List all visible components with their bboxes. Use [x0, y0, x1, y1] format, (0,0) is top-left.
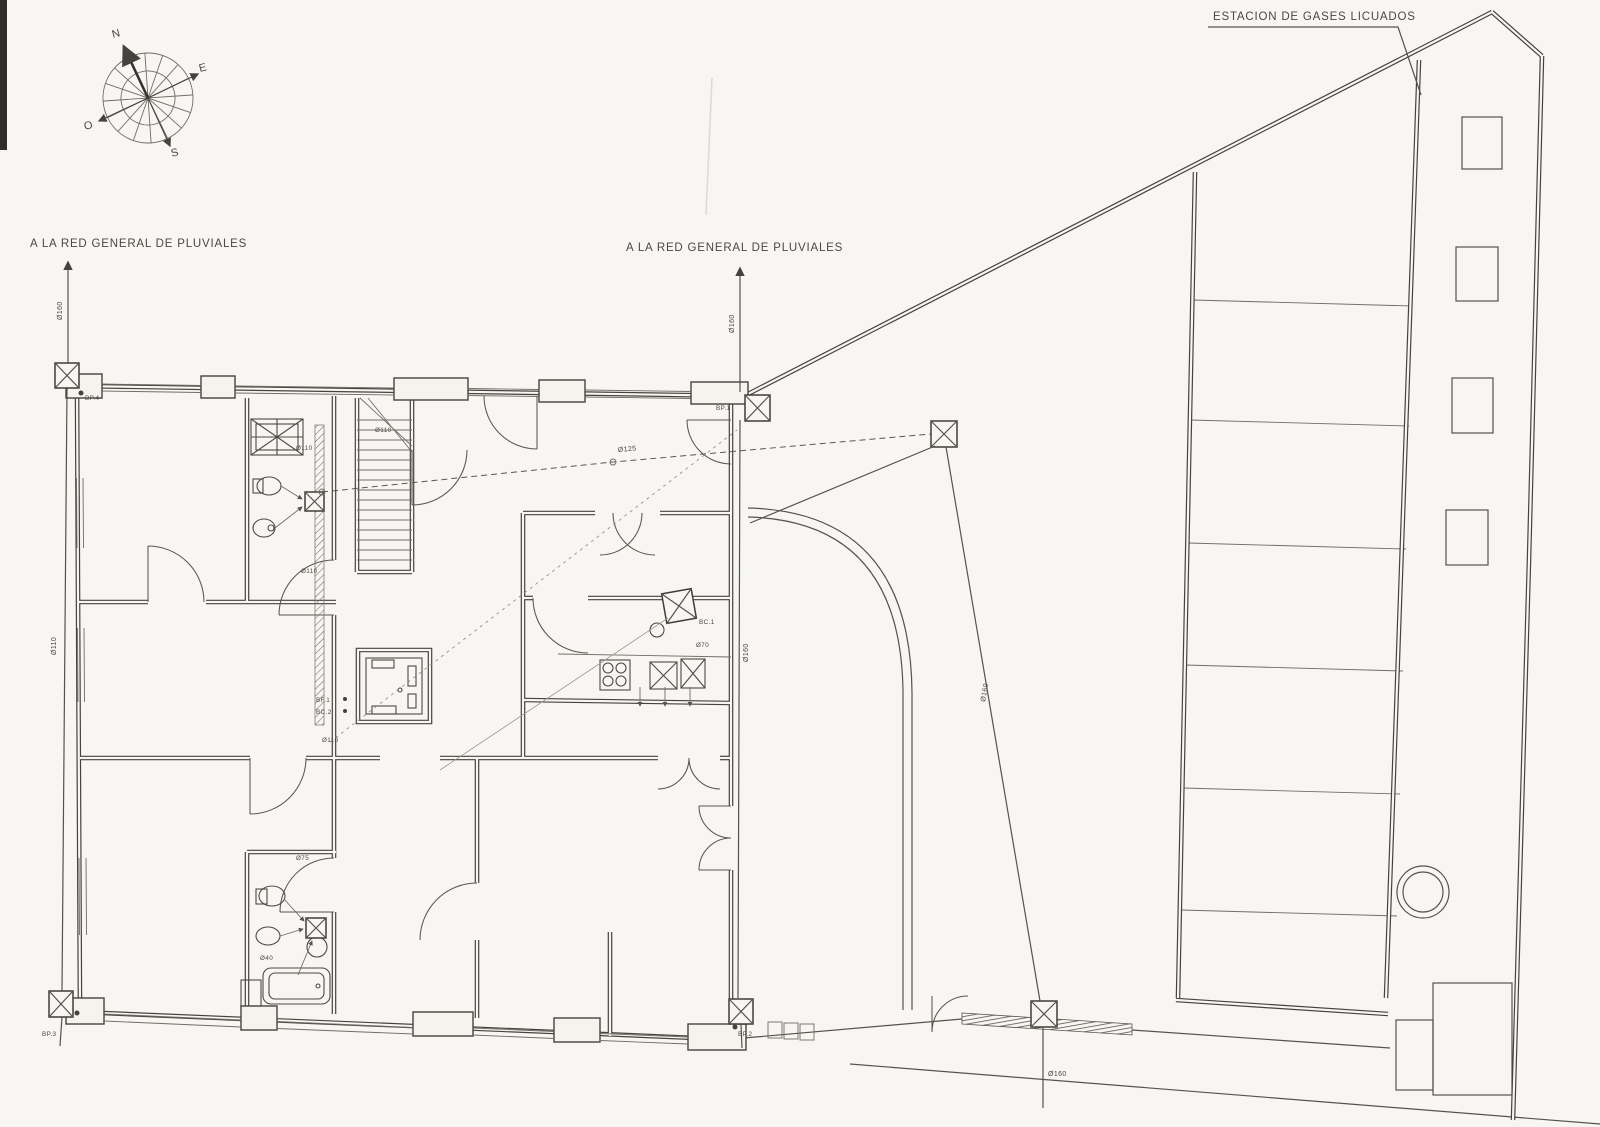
kitchen-manhole	[662, 589, 697, 624]
bath-upper-pipe-label: Ø110	[296, 445, 313, 452]
estacion-callout: ESTACION DE GASES LICUADOS	[1208, 11, 1421, 95]
compass-east-label: E	[198, 61, 209, 75]
pipe-label-left-160: Ø160	[57, 301, 64, 320]
pipe-channel-hatch	[315, 425, 324, 725]
scan-edge-artifact	[0, 0, 7, 150]
compass-rose: N E S O	[83, 27, 209, 160]
pipe-label-left-110: Ø110	[51, 637, 58, 655]
site-plan-drawing: N E S O	[0, 0, 1600, 1127]
estacion-label: ESTACION DE GASES LICUADOS	[1213, 11, 1416, 23]
pluviales-left-label: A LA RED GENERAL DE PLUVIALES	[30, 238, 247, 250]
compass-north-label: N	[111, 27, 122, 41]
bottom-right-structures	[1396, 983, 1512, 1095]
staircase: Ø110	[357, 398, 412, 560]
annotations: A LA RED GENERAL DE PLUVIALES A LA RED G…	[30, 11, 1421, 1078]
bathroom-upper: Ø110 Ø110	[251, 419, 324, 725]
kitchen-manhole-label: BC.1	[699, 619, 715, 626]
utility-bc-label: BC.2	[316, 709, 332, 716]
bath-lower-manhole	[306, 918, 326, 938]
bath-lower-pipe-label-75: Ø75	[296, 855, 309, 862]
bath-lower-pipe-label-40: Ø40	[260, 955, 273, 962]
paper-crease	[706, 78, 712, 215]
pipe-label-center-low: Ø160	[743, 643, 750, 662]
bathroom-lower: Ø75 Ø40	[241, 855, 330, 1006]
compass-west-label: O	[83, 119, 95, 133]
door-arcs	[148, 396, 731, 940]
manhole-label-bp2: BP.2	[738, 1031, 753, 1038]
wall-piers	[66, 374, 748, 1050]
walls	[76, 12, 1542, 1120]
pipe-label-collector-125: Ø125	[618, 445, 637, 454]
manhole-courtyard	[931, 421, 957, 447]
utility-bf-label: BF.1	[316, 697, 330, 704]
pipe-label-center-160: Ø160	[729, 314, 736, 333]
scanned-site-plan-page: N E S O	[0, 0, 1600, 1127]
kitchen-pipe-label: Ø70	[696, 642, 709, 649]
pipe-label-outfall-160: Ø160	[1048, 1071, 1067, 1078]
pluviales-center-label: A LA RED GENERAL DE PLUVIALES	[626, 242, 843, 254]
manhole-outfall	[1031, 1001, 1057, 1027]
manhole-label-bp3: BP.3	[42, 1031, 57, 1038]
pillar-squares	[1446, 117, 1502, 565]
kitchen: BC.1 Ø70	[558, 589, 731, 706]
manhole-label-bp4: BP.4	[85, 395, 100, 402]
manhole-label-bp1: BP.1	[716, 405, 731, 412]
tree-circle	[1397, 866, 1449, 918]
channel-pipe-label: Ø110	[301, 568, 318, 575]
utility-pipe-label: Ø110	[322, 737, 339, 744]
stair-pipe-label: Ø110	[375, 427, 392, 434]
walls-core	[76, 12, 1542, 1120]
parking-bay-dividers	[1181, 300, 1412, 916]
compass-arrows	[99, 47, 198, 146]
gate-steps	[768, 1022, 814, 1040]
courtyard-ground	[744, 117, 1600, 1124]
manhole-bp1	[745, 395, 770, 421]
compass-south-label: S	[170, 146, 181, 160]
